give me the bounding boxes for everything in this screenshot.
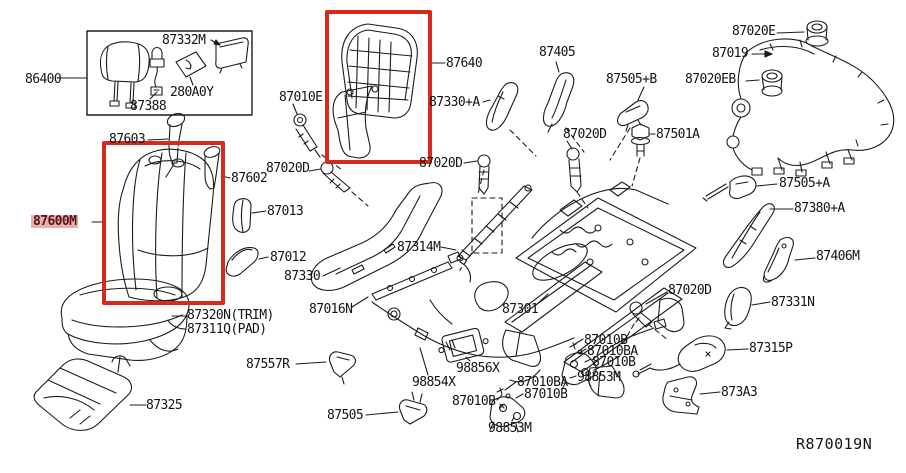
part-label-98853M-left[interactable]: 98853M xyxy=(488,422,531,435)
bolt-87501A xyxy=(632,124,650,156)
grommet-87020EB xyxy=(762,70,782,96)
part-label-873A3[interactable]: 873A3 xyxy=(721,386,757,399)
seatback-cover-87600M xyxy=(118,149,213,301)
screw-87020D-c xyxy=(567,148,581,192)
part-label-87330A[interactable]: 87330+A xyxy=(429,96,480,109)
part-label-87388[interactable]: 87388 xyxy=(130,100,166,113)
part-label-87325[interactable]: 87325 xyxy=(146,399,182,412)
part-label-87380A[interactable]: 87380+A xyxy=(794,202,845,215)
part-label-87010B-mid[interactable]: 87010B xyxy=(524,388,567,401)
part-label-87603[interactable]: 87603 xyxy=(109,133,145,146)
arm-87380A xyxy=(724,204,775,268)
finisher-87013 xyxy=(233,199,251,233)
part-label-87602[interactable]: 87602 xyxy=(231,172,267,185)
clip-87505 xyxy=(399,392,426,424)
part-label-87020E[interactable]: 87020E xyxy=(732,25,775,38)
part-label-87406M[interactable]: 87406M xyxy=(816,250,859,263)
part-label-87020D-b[interactable]: 87020D xyxy=(419,157,462,170)
part-label-87010B-r2[interactable]: 87010B xyxy=(592,356,635,369)
bolt-87010E xyxy=(294,114,320,157)
clip-87557R xyxy=(329,352,355,384)
bracket-87406M xyxy=(763,238,793,283)
part-label-87320N[interactable]: 87320N(TRIM) xyxy=(187,309,274,322)
part-label-87012[interactable]: 87012 xyxy=(270,251,306,264)
part-label-87020D-c[interactable]: 87020D xyxy=(563,128,606,141)
part-label-87311Q[interactable]: 87311Q(PAD) xyxy=(187,323,267,336)
seat-cushion-87320N xyxy=(61,279,189,360)
diagram-reference-code: R870019N xyxy=(796,437,872,452)
part-label-87505B[interactable]: 87505+B xyxy=(606,73,657,86)
part-label-87010B-left[interactable]: 87010B xyxy=(452,395,495,408)
part-label-87301[interactable]: 87301 xyxy=(502,303,538,316)
pad-87331N xyxy=(725,287,751,329)
part-label-87505A[interactable]: 87505+A xyxy=(779,177,830,190)
part-label-87600M-highlighted[interactable]: 87600M xyxy=(31,215,78,228)
part-label-280A0Y[interactable]: 280A0Y xyxy=(170,86,213,99)
headrest-holder-87602 xyxy=(203,145,221,189)
grommet-87020E xyxy=(806,21,828,46)
bracket-87315P xyxy=(633,336,725,377)
part-label-87314M[interactable]: 87314M xyxy=(397,241,440,254)
part-label-98853M-right[interactable]: 98853M xyxy=(577,371,620,384)
part-label-87010E[interactable]: 87010E xyxy=(279,91,322,104)
part-label-87019[interactable]: 87019 xyxy=(712,47,748,60)
part-label-87640[interactable]: 87640 xyxy=(446,57,482,70)
part-label-87020D-d[interactable]: 87020D xyxy=(668,284,711,297)
parts-diagram-canvas: 86400 87332M 87388 280A0Y 87603 87600M 8… xyxy=(0,0,906,473)
seatback-frame-87640 xyxy=(333,24,417,158)
part-label-87331N[interactable]: 87331N xyxy=(771,296,814,309)
mat-87325 xyxy=(34,356,131,431)
bracket-873A3 xyxy=(663,377,699,414)
clip-87505A xyxy=(703,176,756,201)
part-label-87016N[interactable]: 87016N xyxy=(309,303,352,316)
part-label-87330[interactable]: 87330 xyxy=(284,270,320,283)
part-label-87020D-a[interactable]: 87020D xyxy=(266,162,309,175)
callout-boxes xyxy=(104,12,430,303)
rail-87314M xyxy=(457,185,532,261)
bracket-87330A xyxy=(486,83,517,131)
part-label-87315P[interactable]: 87315P xyxy=(749,342,792,355)
part-label-86400[interactable]: 86400 xyxy=(25,73,61,86)
part-label-87013[interactable]: 87013 xyxy=(267,205,303,218)
bracket-87405 xyxy=(543,73,573,132)
finisher-87012 xyxy=(226,248,258,276)
harness-87019 xyxy=(727,39,894,176)
headrest-pivot-87603 xyxy=(165,111,186,163)
clip-87505B xyxy=(617,101,648,131)
shield-87330 xyxy=(311,183,442,291)
part-label-87501A[interactable]: 87501A xyxy=(656,128,699,141)
part-label-87020EB[interactable]: 87020EB xyxy=(685,73,736,86)
screw-87020D-a xyxy=(321,162,350,192)
sensor-87016N xyxy=(372,252,471,300)
part-label-87405[interactable]: 87405 xyxy=(539,46,575,59)
part-label-98856X[interactable]: 98856X xyxy=(456,362,499,375)
part-label-98854X[interactable]: 98854X xyxy=(412,376,455,389)
part-label-87557R[interactable]: 87557R xyxy=(246,358,289,371)
part-label-87505[interactable]: 87505 xyxy=(327,409,363,422)
part-label-87332M[interactable]: 87332M xyxy=(162,34,205,47)
